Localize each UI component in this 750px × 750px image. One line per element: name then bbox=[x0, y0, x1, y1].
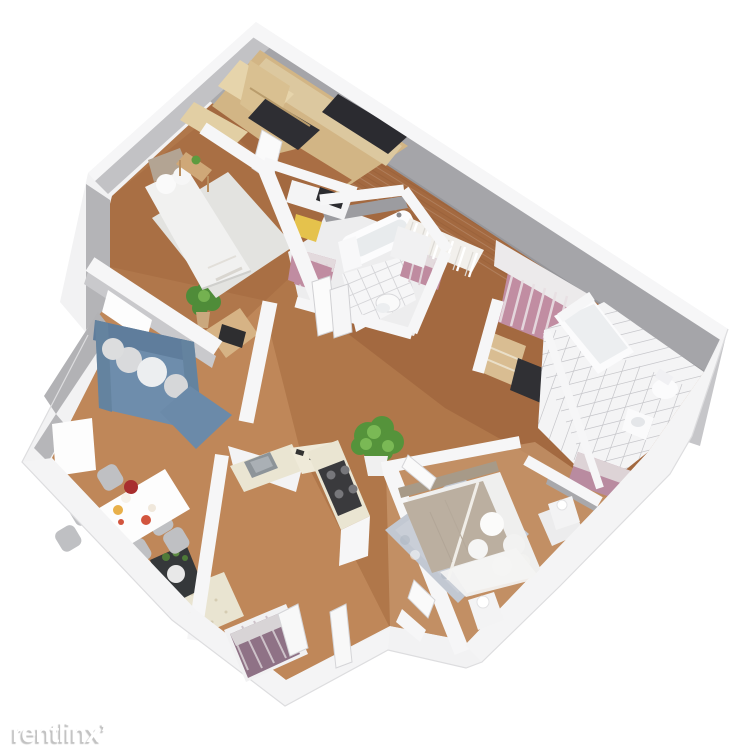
svg-text:rentlinx’: rentlinx’ bbox=[12, 718, 106, 748]
